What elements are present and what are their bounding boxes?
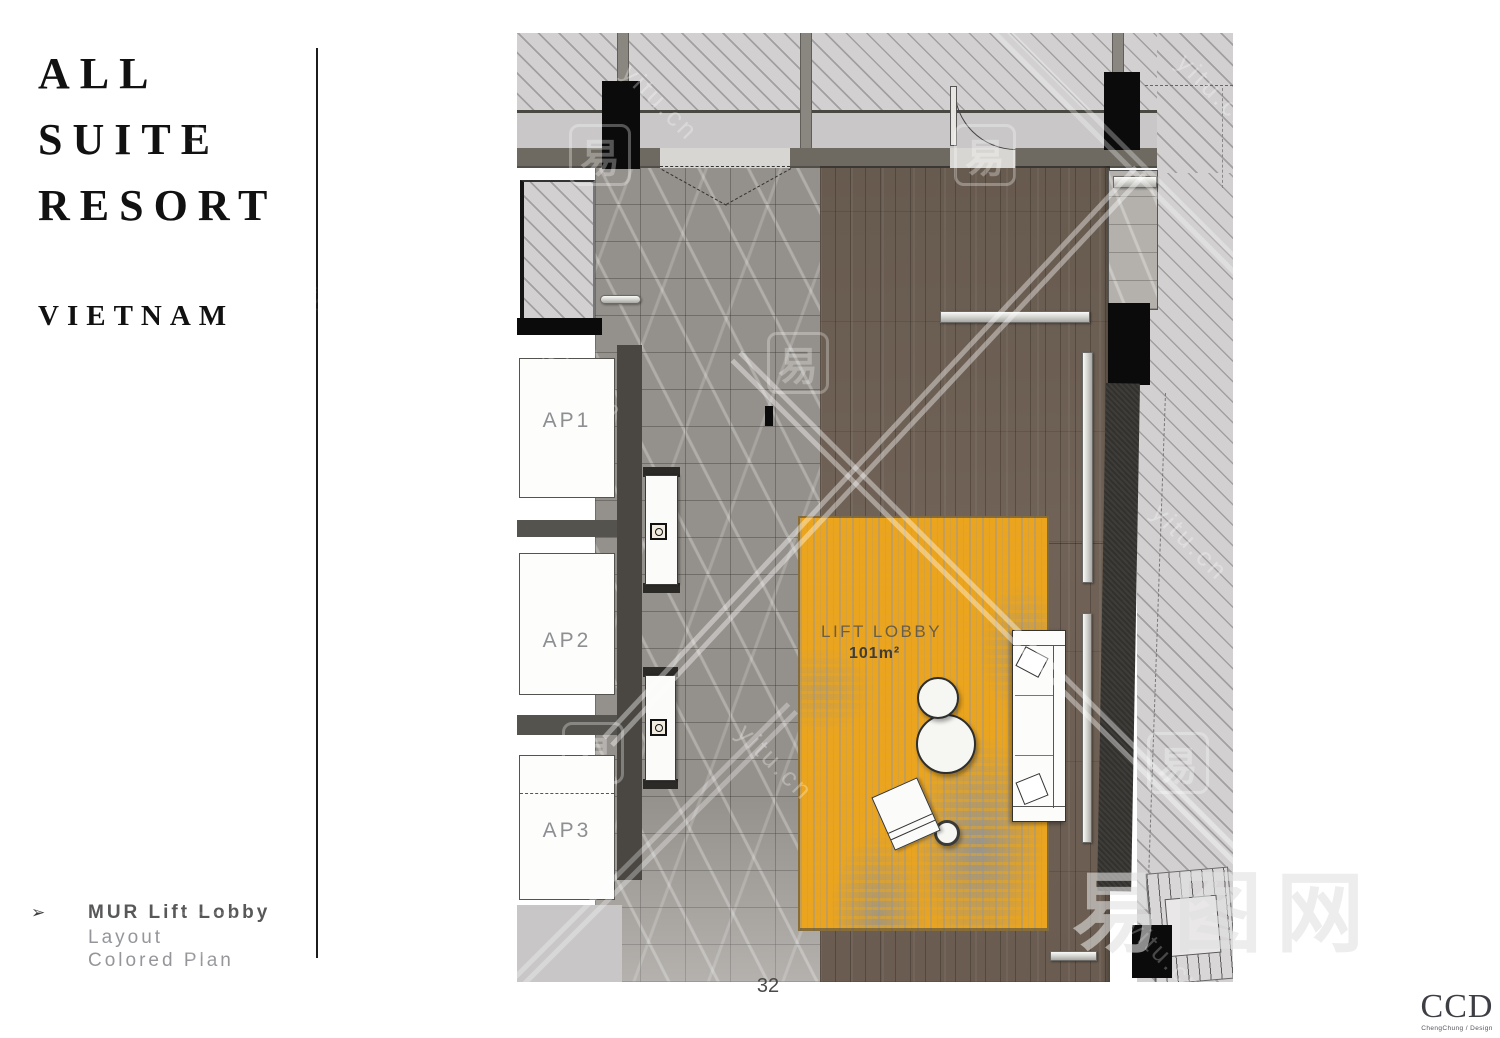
- lobby-area-label: 101m²: [849, 645, 900, 663]
- console-bench: [1050, 951, 1097, 961]
- room-label: AP3: [520, 819, 614, 843]
- page-number: 32: [745, 975, 791, 998]
- slide-canvas: ALL SUITE RESORT VIETNAM ➢ MUR Lift Lobb…: [0, 0, 1500, 1038]
- console-bench: [1082, 352, 1093, 583]
- wall-band: [517, 520, 617, 537]
- ccd-logo-tagline: ChengChung / Design: [1413, 1025, 1500, 1032]
- sofa: [1012, 630, 1066, 822]
- column: [602, 81, 640, 169]
- console-shelf: [1113, 176, 1157, 188]
- room-label: AP1: [520, 409, 614, 433]
- ccd-logo-name: CCD: [1413, 990, 1500, 1024]
- footer-caption-line3: Colored Plan: [88, 950, 234, 972]
- vertical-divider: [316, 48, 318, 958]
- lift-door-2: [645, 675, 676, 781]
- watermark-glyph: 易: [1417, 347, 1479, 409]
- page-title-line-2: SUITE: [38, 114, 220, 165]
- arrow-icon: ➢: [31, 903, 45, 923]
- sofa-armrest: [1013, 631, 1065, 646]
- lift-door-1: [645, 475, 678, 585]
- mullion: [1112, 33, 1124, 73]
- door-opening: [660, 148, 790, 168]
- room-ap1: AP1: [519, 358, 615, 498]
- watermark-site: yitu.cn: [1405, 468, 1495, 558]
- corridor-wall: [617, 345, 642, 880]
- marble-niche: [1108, 170, 1158, 310]
- wall-black: [517, 318, 602, 335]
- lobby-name-label: LIFT LOBBY: [821, 622, 942, 642]
- door-leaf: [950, 86, 957, 146]
- stair-landing: [1165, 895, 1222, 957]
- mullion: [800, 33, 812, 148]
- sofa-pillow: [1015, 773, 1048, 805]
- dashed-line: [520, 793, 614, 794]
- watermark-glyph: 易: [1332, 132, 1394, 194]
- dashed-boundary: [1145, 85, 1233, 86]
- lift-call-icon: [650, 523, 667, 540]
- watermark-glyph: 易: [1342, 572, 1404, 634]
- sofa-back: [1053, 646, 1065, 808]
- door-dash: [660, 166, 790, 167]
- sofa-cushion-line: [1015, 755, 1053, 756]
- column: [1108, 303, 1150, 385]
- ccd-logo: CCD ChengChung / Design: [1413, 990, 1500, 1032]
- gray-zone: [517, 905, 622, 982]
- watermark-glyph: 易: [1335, 935, 1397, 997]
- door-opening: [950, 148, 1015, 168]
- dashed-boundary: [1222, 88, 1223, 188]
- lift-call-icon: [650, 719, 667, 736]
- watermark-glyph: 易: [1272, 714, 1334, 776]
- watermark-glyph: 易: [32, 572, 94, 634]
- threshold-bar: [600, 295, 641, 304]
- page-title-line-3: RESORT: [38, 180, 277, 231]
- room-ap2: AP2: [519, 553, 615, 695]
- column: [1104, 72, 1140, 150]
- floor-plan: AP1 AP2 AP3 LIFT LOBBY 101m²: [517, 33, 1233, 982]
- console-bench: [940, 311, 1090, 323]
- sofa-cushion-line: [1015, 695, 1053, 696]
- hatched-room: [520, 180, 595, 318]
- coffee-table-large: [916, 714, 976, 774]
- coffee-table-small: [917, 677, 959, 719]
- page-title-line-1: ALL: [38, 48, 158, 99]
- room-label: AP2: [520, 629, 614, 653]
- page-subtitle: VIETNAM: [38, 300, 234, 333]
- footer-caption-line2: Layout: [88, 927, 163, 949]
- sofa-armrest: [1013, 806, 1065, 821]
- sofa-pillow: [1015, 646, 1048, 678]
- footer-caption-title: MUR Lift Lobby: [88, 902, 270, 924]
- console-bench: [1082, 613, 1092, 843]
- room-ap3: AP3: [519, 755, 615, 900]
- watermark-site: yitu.cn: [280, 263, 370, 353]
- column: [1132, 925, 1172, 978]
- wall-band: [517, 715, 617, 735]
- floor-marker: [765, 406, 773, 426]
